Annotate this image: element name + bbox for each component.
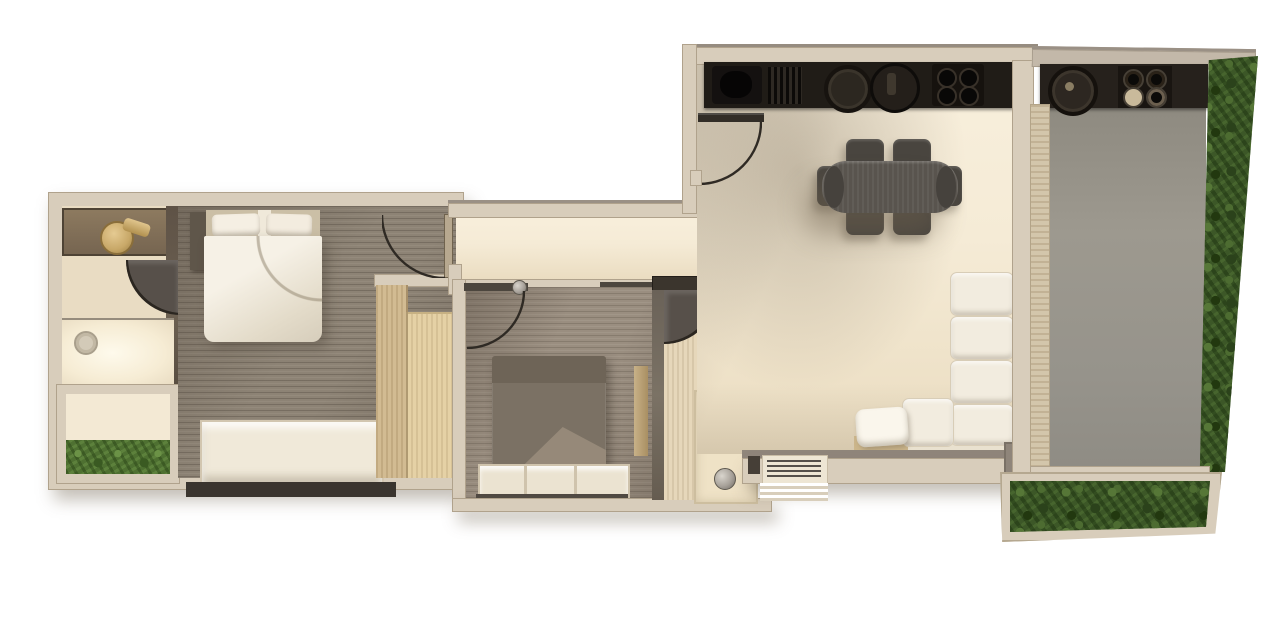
entrance-door-leaf [698, 113, 764, 122]
kitchen-pot-handle [887, 73, 896, 95]
bed-2-head [492, 356, 606, 383]
kitchen-sink-basin [720, 71, 752, 98]
bathroom-2-west-wall [652, 290, 664, 500]
bedroom-2-shelf-strip [634, 366, 648, 456]
master-dresser-base [186, 482, 396, 497]
dining-table-cap-right [936, 166, 956, 208]
floor-plan [0, 0, 1280, 618]
outdoor-burner [1048, 66, 1098, 116]
terrace-deck [1046, 106, 1206, 468]
master-wardrobe [376, 285, 408, 478]
wall-corner-block [748, 456, 760, 474]
dining-table-cap-left [824, 166, 844, 208]
sofa-back-cushion-3 [950, 360, 1014, 404]
master-door-arc [382, 214, 446, 278]
right-wing-west-wall [682, 44, 697, 214]
bench-divider-1 [524, 464, 527, 498]
sofa-seat-cushion [902, 398, 954, 447]
master-pillow-left [212, 213, 261, 237]
hob-burner-tr [959, 68, 979, 88]
hob-burner-tl [937, 68, 957, 88]
master-bed-fold-line [204, 236, 322, 342]
hob-burner-bl [937, 86, 957, 106]
planter-2-frame [1000, 472, 1222, 542]
terrace-sliding-door-track [1030, 104, 1050, 474]
shower-2-drain [714, 468, 736, 490]
outdoor-hob-burner-br [1146, 87, 1167, 108]
outdoor-hob-burner-bl [1123, 87, 1144, 108]
bedroom-2-west-wall [452, 279, 466, 512]
entrance-hinge-block [690, 170, 702, 186]
shower-1-drain [74, 331, 98, 355]
sofa-throw-pillow [855, 406, 910, 448]
sofa-back-cushion-1 [950, 272, 1014, 316]
louver-slats [767, 460, 821, 478]
planter-1-hedge [66, 440, 170, 474]
outdoor-burner-center [1065, 82, 1074, 91]
entrance-door-arc [699, 122, 762, 185]
sofa-back-cushion-4 [950, 404, 1014, 446]
master-pillow-right [266, 213, 313, 236]
terrace-hedge-wall [1198, 56, 1258, 472]
sofa-back-cushion-2 [950, 316, 1014, 360]
kitchen-round-plate [824, 65, 872, 113]
planter-2-hedge [1010, 481, 1210, 532]
master-dresser [200, 420, 384, 484]
hob-burner-br [959, 86, 979, 106]
bedroom-2-door-arc [467, 291, 525, 349]
kitchen-drainboard [768, 67, 802, 104]
bedroom-2-wardrobe [406, 312, 458, 478]
exterior-steps [760, 483, 828, 501]
hallway-north-wall [448, 200, 702, 218]
hallway-floor [456, 213, 702, 281]
bench-divider-2 [574, 464, 577, 498]
